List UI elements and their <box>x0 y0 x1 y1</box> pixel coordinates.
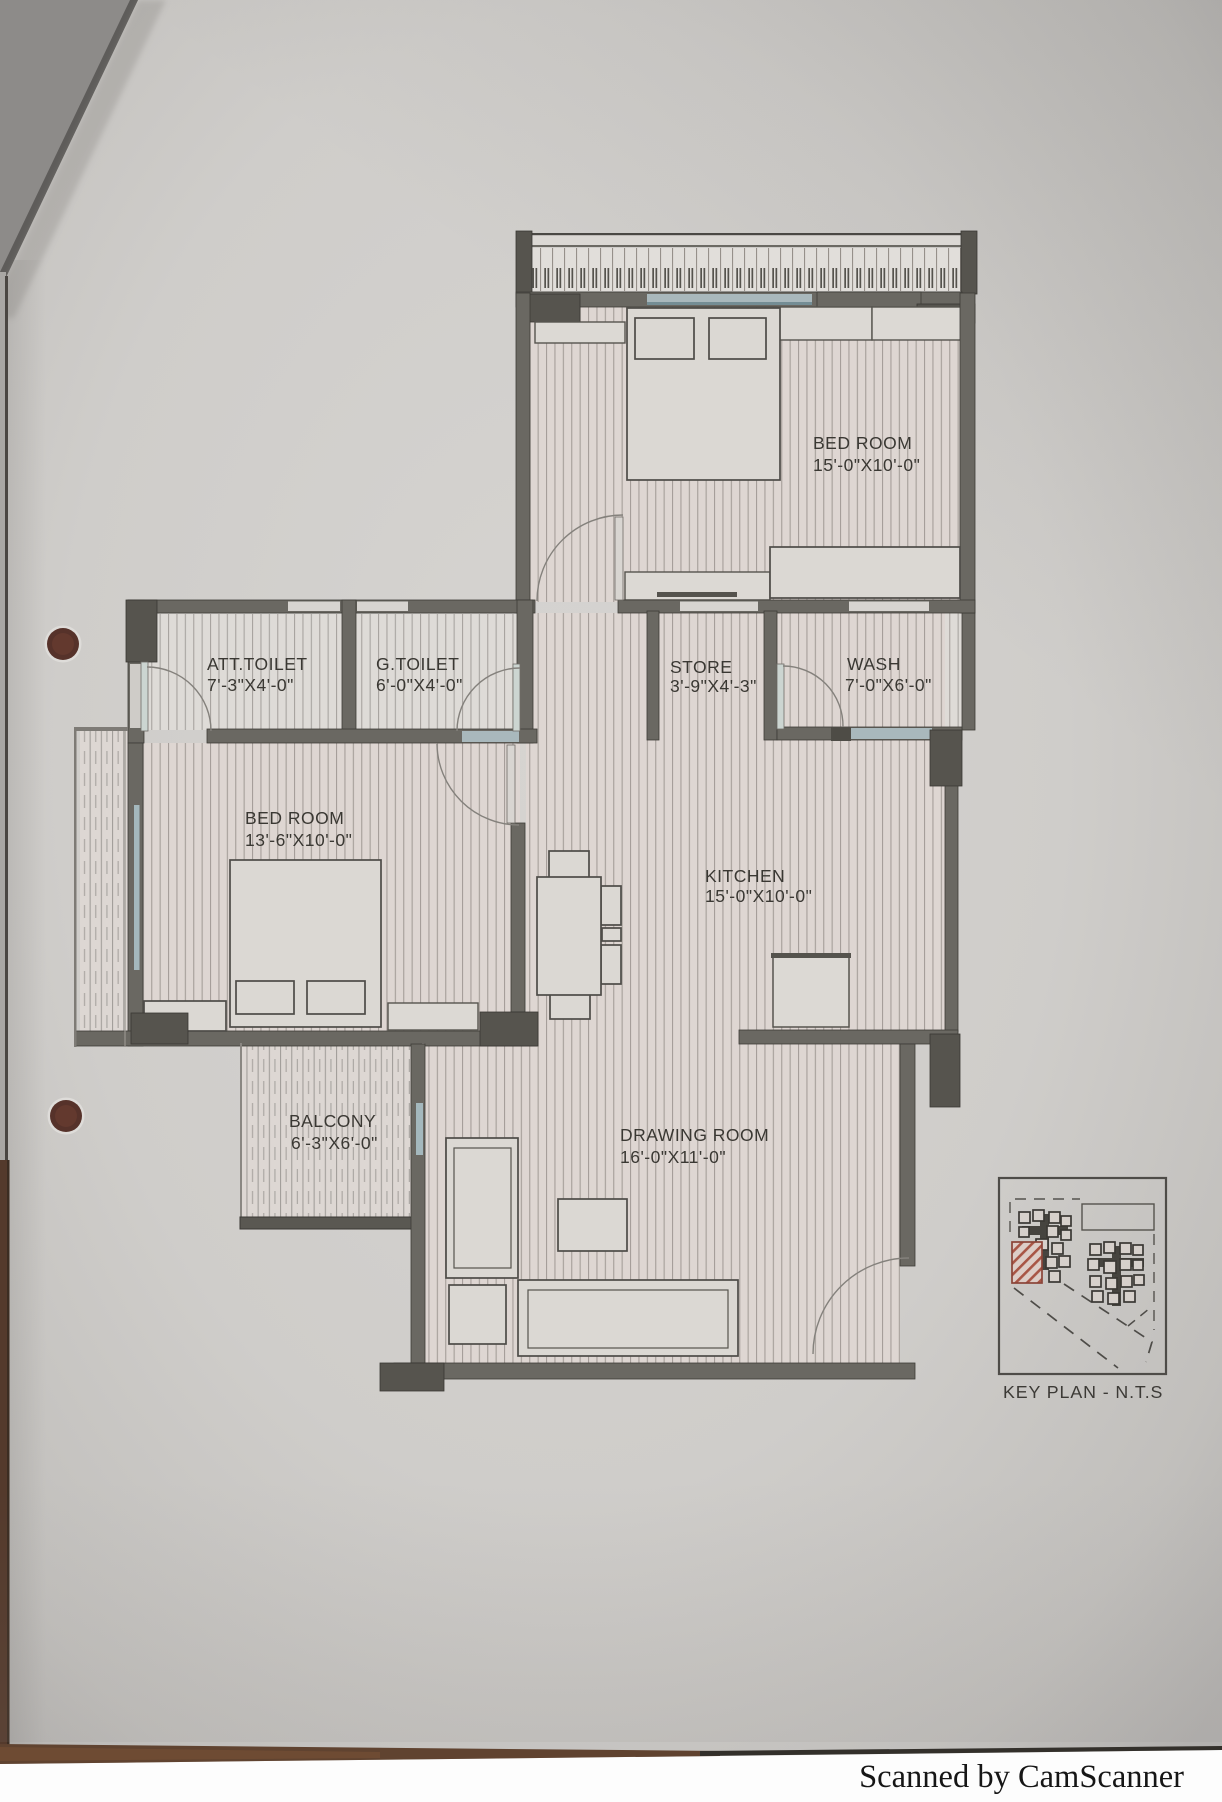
svg-text:16'-0"X11'-0": 16'-0"X11'-0" <box>620 1147 726 1167</box>
svg-text:6'-3"X6'-0": 6'-3"X6'-0" <box>291 1133 378 1153</box>
svg-text:13'-6"X10'-0": 13'-6"X10'-0" <box>245 830 352 850</box>
svg-text:15'-0"X10'-0": 15'-0"X10'-0" <box>813 455 920 475</box>
svg-text:KEY PLAN - N.T.S: KEY PLAN - N.T.S <box>1003 1382 1163 1402</box>
svg-text:DRAWING ROOM: DRAWING ROOM <box>620 1125 769 1145</box>
svg-text:Scanned by CamScanner: Scanned by CamScanner <box>859 1759 1184 1795</box>
svg-text:ATT.TOILET: ATT.TOILET <box>207 654 308 674</box>
svg-text:3'-9"X4'-3": 3'-9"X4'-3" <box>670 676 757 696</box>
svg-text:7'-0"X6'-0": 7'-0"X6'-0" <box>845 675 932 695</box>
svg-text:STORE: STORE <box>670 657 732 677</box>
svg-text:KITCHEN: KITCHEN <box>705 866 785 886</box>
svg-text:BED ROOM: BED ROOM <box>245 808 344 828</box>
svg-text:7'-3"X4'-0": 7'-3"X4'-0" <box>207 675 294 695</box>
svg-text:15'-0"X10'-0": 15'-0"X10'-0" <box>705 886 812 906</box>
svg-text:BED ROOM: BED ROOM <box>813 433 912 453</box>
svg-text:G.TOILET: G.TOILET <box>376 654 459 674</box>
svg-text:WASH: WASH <box>847 654 901 674</box>
svg-text:BALCONY: BALCONY <box>289 1111 376 1131</box>
svg-text:6'-0"X4'-0": 6'-0"X4'-0" <box>376 675 463 695</box>
